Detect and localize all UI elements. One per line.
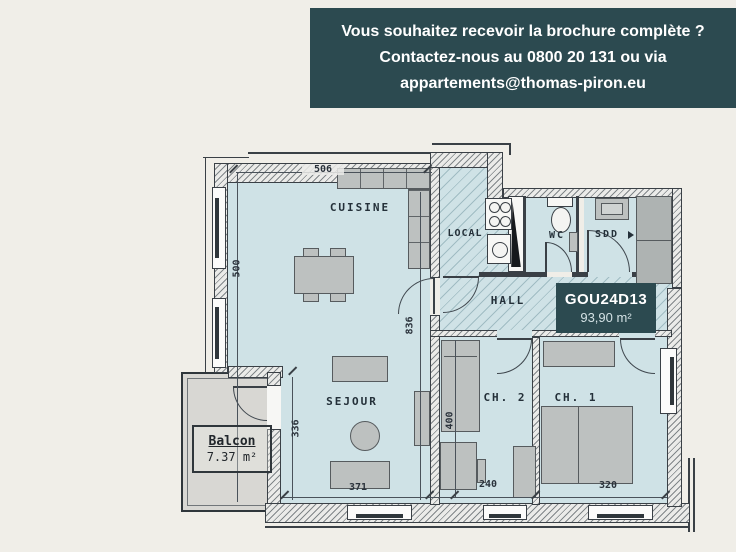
cabinet — [513, 446, 536, 498]
room-label-ch1: CH. 1 — [548, 391, 604, 404]
window-pane — [356, 514, 404, 518]
dim-sejour-height: 336 — [291, 414, 302, 444]
dim-sejour-width: 371 — [338, 482, 378, 493]
dim-cuisine-width: 506 — [302, 164, 344, 175]
dining-chair — [303, 293, 319, 302]
dimension-line-bottom — [283, 497, 667, 498]
shower-door-line — [637, 240, 671, 241]
floor-plan: 506 500 836 336 400 371 240 320 CUISINE … — [0, 0, 736, 552]
wall-wc-left — [524, 196, 526, 272]
balcony-name: Balcon — [194, 434, 270, 449]
room-label-cuisine: CUISINE — [320, 201, 400, 214]
kitchen-counter-right — [408, 189, 430, 269]
sink-basin — [601, 203, 623, 215]
door-leaf-balcony — [233, 386, 267, 388]
dining-table — [294, 256, 354, 294]
dim-hall-wall: 836 — [405, 311, 416, 341]
dim-ch1-width: 320 — [588, 480, 628, 491]
room-label-local: LOCAL — [438, 228, 492, 239]
shower — [636, 196, 672, 284]
outer-line — [693, 458, 695, 532]
window-pane — [215, 198, 219, 259]
sdd-door-arrow — [628, 231, 634, 239]
washer-drum — [489, 202, 500, 213]
window-pane — [670, 357, 674, 406]
unit-label-box: GOU24D13 93,90 m² — [556, 283, 656, 333]
wall-main-vertical-lower — [430, 315, 440, 505]
outer-line — [432, 143, 510, 145]
window-bottom-sejour — [347, 505, 412, 520]
bed-double — [541, 406, 633, 484]
door-leaf-local — [443, 276, 479, 278]
balcony-area: 7.37 m² — [194, 450, 270, 464]
wall-main-vertical-upper — [430, 163, 440, 278]
door-leaf-ch2 — [497, 338, 532, 340]
unit-area: 93,90 m² — [556, 310, 656, 325]
door-leaf-wc — [545, 242, 547, 272]
unit-code: GOU24D13 — [556, 291, 656, 308]
door-gap-balcony — [267, 385, 281, 430]
dim-ch2-width: 240 — [468, 479, 508, 490]
door-leaf-ch1 — [620, 338, 655, 340]
washer-drum — [500, 202, 511, 213]
outer-line — [265, 526, 689, 528]
room-label-sejour: SEJOUR — [316, 395, 388, 408]
window-bottom-ch2 — [483, 505, 527, 520]
door-leaf-cuisine — [433, 278, 435, 314]
dining-chair — [330, 293, 346, 302]
coffee-table — [350, 421, 380, 451]
wall-step-local — [487, 152, 503, 200]
washer-drum — [489, 216, 500, 227]
room-label-ch2: CH. 2 — [477, 391, 533, 404]
door-gap-ch2 — [497, 330, 532, 337]
room-label-sdd: SDD — [586, 229, 628, 240]
wall-right-top — [672, 188, 682, 288]
wall-hall-top-seg — [479, 272, 547, 277]
wall-top-local — [430, 152, 495, 168]
outer-line — [205, 157, 206, 372]
room-label-hall: HALL — [480, 294, 536, 307]
window-pane — [597, 514, 645, 518]
bathroom-sink — [595, 198, 629, 220]
window-pane — [215, 307, 219, 359]
sideboard — [414, 391, 430, 446]
armchair — [332, 356, 388, 382]
washing-machine — [485, 198, 512, 230]
window-left-1 — [212, 187, 226, 269]
room-label-wc: WC — [540, 230, 574, 241]
washer-drum — [500, 216, 511, 227]
pillow — [444, 343, 477, 357]
dim-ch2-height: 400 — [445, 406, 456, 436]
outer-line — [509, 143, 511, 155]
dim-cuisine-height: 500 — [232, 254, 243, 284]
dimension-line-836 — [420, 192, 421, 500]
wall-hall-top-seg — [572, 272, 588, 277]
room-local-fill — [440, 168, 488, 277]
window-right-niche — [660, 348, 677, 414]
window-bottom-ch1 — [588, 505, 653, 520]
balcony-label-box: Balcon 7.37 m² — [192, 425, 272, 473]
outer-line — [248, 152, 438, 154]
toilet-cistern — [547, 197, 573, 207]
window-pane — [489, 514, 521, 518]
wardrobe — [543, 341, 615, 367]
blanket-fold — [578, 407, 579, 483]
window-left-2 — [212, 298, 226, 368]
outer-line — [203, 157, 249, 158]
dryer-drum — [492, 242, 508, 258]
